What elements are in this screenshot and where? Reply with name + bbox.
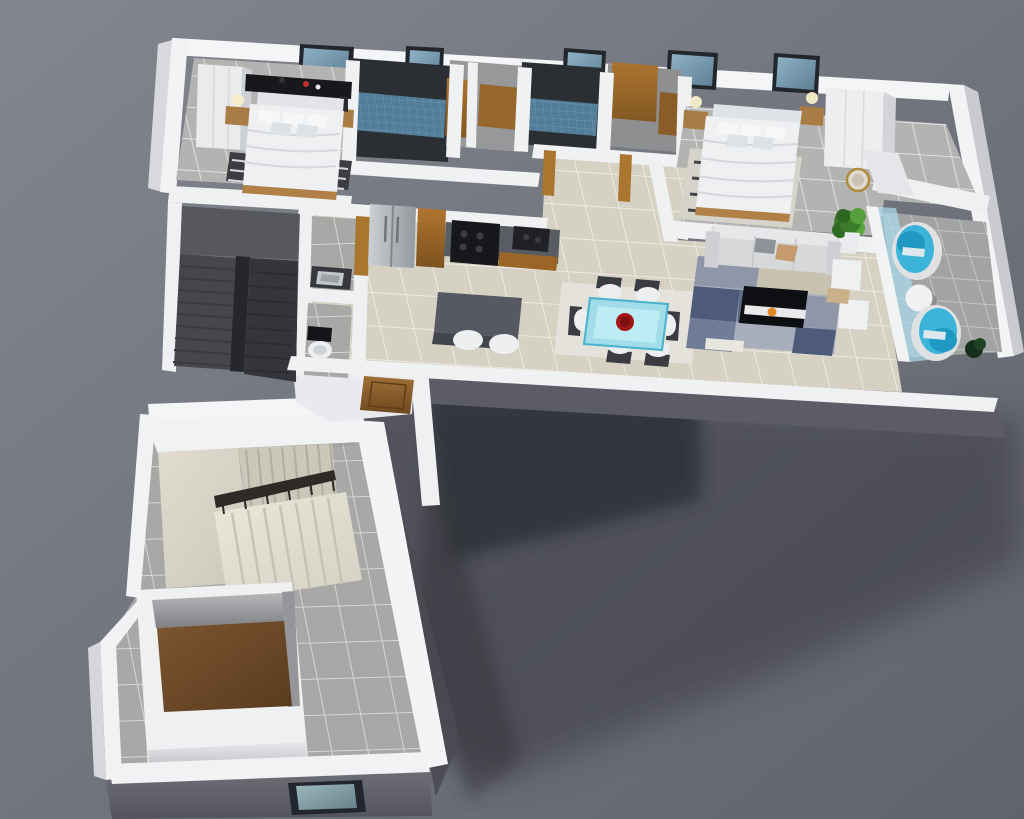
closet2-wardrobe-a — [610, 62, 658, 122]
balcony-plant-dark-2 — [974, 338, 986, 350]
range-burner-4 — [476, 246, 483, 253]
dining-centerpiece-core — [620, 317, 630, 327]
dining-chair-1-seat — [598, 284, 622, 300]
toilet-tank — [307, 326, 332, 342]
island-stool-2 — [489, 334, 519, 354]
floor-plan-3d-render — [0, 0, 1024, 819]
lower-facade-window-glass — [296, 784, 357, 810]
stair-dark-landing — [180, 206, 300, 260]
sofa-pillow-tan — [775, 244, 798, 262]
cooktop2-burner-2 — [535, 237, 541, 243]
kitchen-cooktop-2 — [512, 226, 550, 252]
bedroom2-lamp-left-glow — [232, 94, 244, 106]
master-wall-mirror-inner — [852, 174, 864, 186]
living-rug-patch-3 — [690, 286, 740, 322]
bathroom1-mosaic-shower — [354, 92, 446, 138]
master-plant-leaves-3 — [836, 209, 850, 223]
corridor-door-jamb-1 — [542, 150, 556, 196]
closet1-partition — [466, 62, 478, 148]
cooktop2-burner-1 — [523, 234, 529, 240]
nook-side-table — [826, 288, 850, 304]
dining-chair-2-seat — [636, 287, 660, 303]
master-pillow-front-1 — [726, 134, 748, 148]
sofa-arm-left — [704, 231, 720, 268]
floor-plan-svg — [0, 0, 1024, 819]
range-burner-2 — [477, 233, 484, 240]
bedroom2-pillow-1 — [258, 110, 280, 124]
master-pillow-front-2 — [752, 136, 774, 150]
kitchen-island-top — [434, 292, 522, 338]
elevator-wood-floor — [157, 621, 292, 712]
closet1-wardrobe-b — [478, 84, 520, 130]
kitchen-tall-cabinet — [416, 208, 446, 268]
master-plant-pot — [843, 232, 860, 248]
bedroom2-nightstand-left — [225, 106, 250, 126]
master-lamp-left-glow — [690, 96, 702, 108]
coffee-table-candle — [768, 308, 777, 317]
nook-armchair-2 — [838, 299, 869, 330]
master-plant-leaves-2 — [850, 208, 866, 224]
nook-armchair-1 — [831, 259, 862, 290]
range-burner-1 — [461, 231, 468, 238]
window-5-glass — [776, 57, 816, 90]
toilet-bowl-inner — [313, 345, 327, 355]
range-burner-3 — [460, 244, 467, 251]
bedroom2-pillow-front-1 — [270, 122, 292, 136]
master-nightstand-right — [799, 106, 824, 126]
sofa-pillow-gray — [754, 238, 776, 254]
kitchen-range — [450, 220, 500, 266]
powder-door-jamb-wood — [354, 216, 370, 276]
bedroom2-pillow-front-2 — [296, 124, 318, 138]
console-decor-vase — [279, 77, 285, 83]
corridor-door-jamb-2 — [618, 154, 632, 202]
living-rug-patch-7 — [792, 327, 836, 356]
master-nightstand-left — [683, 110, 708, 130]
master-pillow-1 — [716, 122, 738, 136]
island-stool-1 — [453, 330, 483, 350]
master-lamp-right-glow — [806, 92, 818, 104]
bathroom2-mosaic — [526, 98, 598, 136]
console-decor-red — [303, 81, 309, 87]
console-decor-white — [316, 85, 321, 90]
